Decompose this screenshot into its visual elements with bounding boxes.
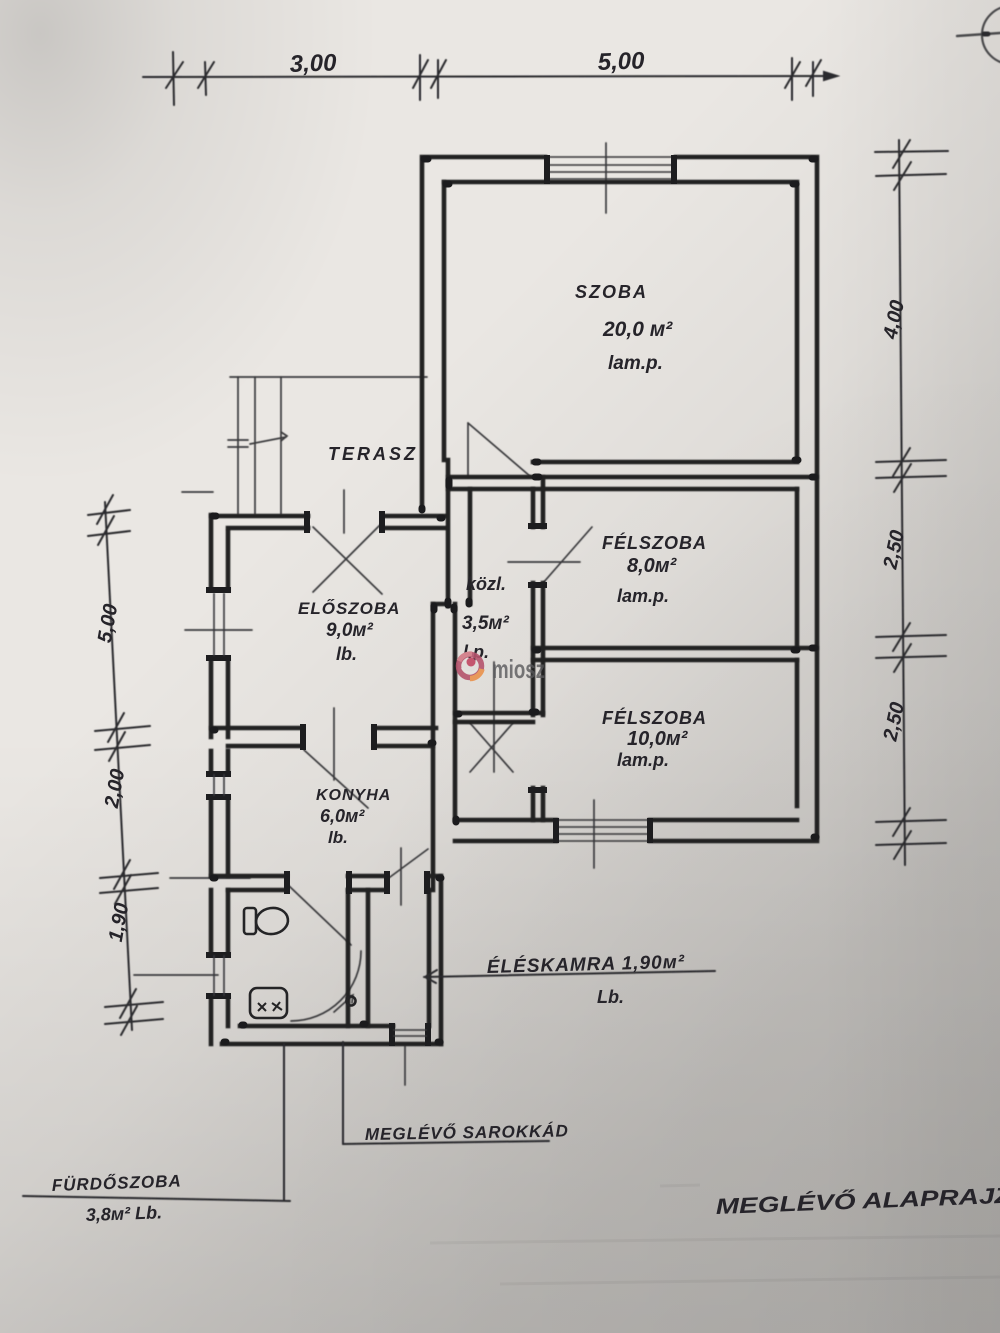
svg-text:lb.: lb. [328, 828, 348, 847]
svg-text:KONYHA: KONYHA [316, 787, 391, 804]
svg-text:SZOBA: SZOBA [575, 282, 648, 302]
svg-text:MEGLÉVŐ SAROKKÁD: MEGLÉVŐ SAROKKÁD [365, 1121, 569, 1144]
svg-text:3,8м² Lb.: 3,8м² Lb. [85, 1202, 162, 1225]
svg-text:Lb.: Lb. [597, 987, 624, 1007]
svg-text:10,0м²: 10,0м² [627, 728, 689, 750]
svg-text:TERASZ: TERASZ [328, 444, 418, 464]
svg-text:3,5м²: 3,5м² [462, 613, 509, 634]
svg-text:FÉLSZOBA: FÉLSZOBA [602, 707, 707, 728]
svg-text:3,00: 3,00 [289, 49, 337, 78]
svg-text:5,00: 5,00 [597, 47, 645, 76]
svg-text:lam.p.: lam.p. [617, 586, 669, 606]
svg-text:miosz: miosz [492, 654, 545, 684]
svg-text:lam.p.: lam.p. [608, 353, 663, 374]
svg-text:20,0 м²: 20,0 м² [602, 318, 673, 341]
svg-text:8,0м²: 8,0м² [627, 555, 678, 577]
svg-text:ELŐSZOBA: ELŐSZOBA [298, 599, 400, 618]
svg-text:közl.: közl. [466, 574, 506, 594]
svg-text:9,0м²: 9,0м² [326, 620, 373, 641]
svg-text:FÉLSZOBA: FÉLSZOBA [602, 532, 707, 553]
svg-text:lb.: lb. [336, 644, 357, 664]
svg-text:lam.p.: lam.p. [617, 750, 669, 770]
svg-text:6,0м²: 6,0м² [320, 806, 365, 826]
